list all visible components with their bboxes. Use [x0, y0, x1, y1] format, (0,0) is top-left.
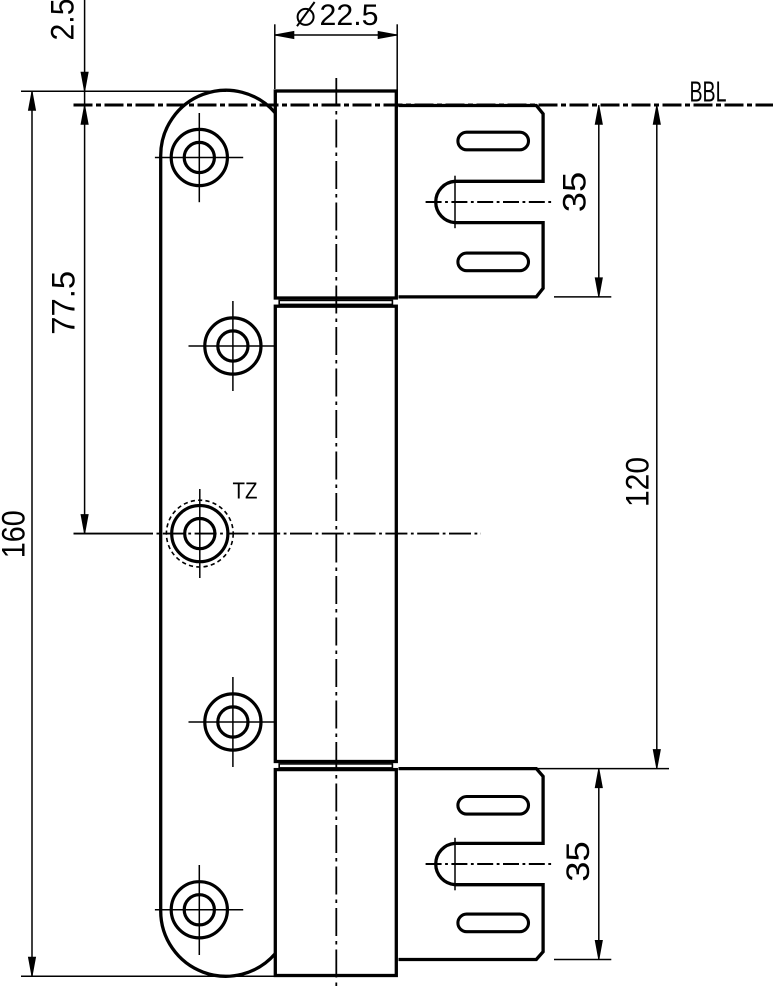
- svg-text:TZ: TZ: [233, 477, 258, 503]
- svg-text:35: 35: [560, 841, 596, 882]
- svg-text:35: 35: [557, 172, 593, 213]
- svg-text:2.5: 2.5: [45, 0, 81, 41]
- svg-text:160: 160: [0, 510, 32, 558]
- svg-text:22.5: 22.5: [320, 0, 379, 32]
- svg-text:BBL: BBL: [690, 77, 727, 109]
- svg-text:120: 120: [620, 457, 656, 507]
- svg-text:77.5: 77.5: [46, 271, 82, 335]
